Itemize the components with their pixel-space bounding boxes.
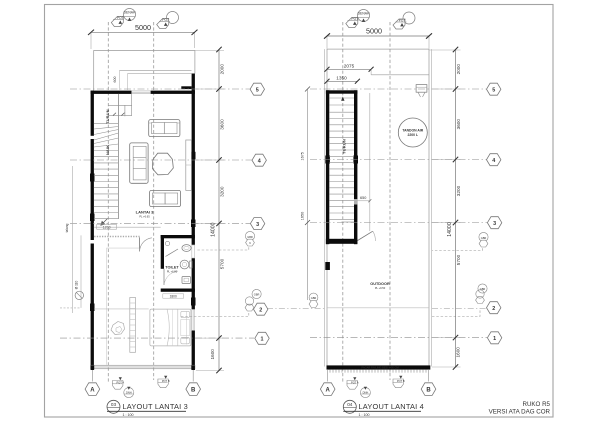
svg-text:A: A: [90, 388, 95, 394]
svg-text:1600: 1600: [210, 349, 215, 360]
svg-text:1: 1: [493, 336, 496, 342]
svg-text:14000: 14000: [211, 222, 217, 237]
svg-text:14000: 14000: [447, 222, 453, 237]
svg-text:4: 4: [492, 158, 495, 164]
svg-text:3600: 3600: [220, 119, 225, 130]
svg-text:OUTDOOR: OUTDOOR: [370, 282, 390, 286]
svg-text:TANDON AIR: TANDON AIR: [402, 128, 423, 132]
svg-text:1 : 100: 1 : 100: [123, 413, 134, 417]
svg-text:2200 L: 2200 L: [408, 133, 419, 137]
svg-text:PL +6.80: PL +6.80: [167, 270, 178, 274]
svg-text:POT: POT: [399, 19, 406, 23]
svg-text:1600: 1600: [456, 347, 461, 358]
svg-text:GBR: GBR: [311, 296, 317, 300]
svg-text:POT A: POT A: [351, 380, 359, 384]
svg-text:2000: 2000: [456, 64, 461, 75]
svg-text:5: 5: [256, 88, 259, 94]
svg-text:POT: POT: [352, 17, 359, 21]
svg-text:talang: talang: [65, 223, 69, 232]
svg-text:3: 3: [493, 221, 496, 227]
svg-text:RUKO R5: RUKO R5: [522, 401, 550, 408]
svg-text:1650: 1650: [301, 212, 305, 220]
svg-text:B: B: [191, 388, 196, 394]
svg-text:DNH: DNH: [363, 390, 369, 394]
svg-text:DENAH: DENAH: [358, 12, 370, 16]
svg-text:POT B: POT B: [162, 379, 170, 383]
svg-text:2000: 2000: [220, 64, 225, 75]
svg-text:1350: 1350: [336, 75, 347, 80]
svg-text:5700: 5700: [456, 254, 461, 265]
svg-text:GBR: GBR: [480, 287, 486, 291]
svg-text:GBR: GBR: [254, 293, 260, 297]
svg-text:1: 1: [261, 337, 264, 343]
svg-text:POT A: POT A: [117, 380, 125, 384]
svg-text:NAIK: NAIK: [106, 145, 110, 155]
svg-text:PAGAR RAILING BESI t=90 CM: PAGAR RAILING BESI t=90 CM: [361, 366, 398, 370]
svg-text:DENAH: DENAH: [124, 11, 136, 15]
svg-text:5: 5: [492, 88, 495, 94]
svg-text:POT: POT: [162, 18, 169, 22]
svg-text:03: 03: [111, 402, 117, 407]
svg-text:04: 04: [347, 402, 353, 407]
svg-text:650: 650: [360, 196, 366, 200]
svg-text:600: 600: [113, 77, 117, 83]
svg-text:1 : 100: 1 : 100: [359, 413, 370, 417]
svg-text:TURUN: TURUN: [341, 139, 346, 154]
svg-text:1675: 1675: [301, 152, 305, 160]
svg-text:2075: 2075: [344, 63, 355, 68]
svg-text:TURUN: TURUN: [106, 109, 110, 123]
svg-text:GBR: GBR: [247, 235, 253, 239]
svg-text:2: 2: [492, 306, 495, 312]
svg-text:PL +6.65: PL +6.65: [139, 215, 150, 219]
svg-text:2: 2: [259, 308, 262, 314]
svg-text:B: B: [426, 388, 431, 394]
svg-text:LANTAI 3: LANTAI 3: [136, 210, 154, 215]
svg-text:4: 4: [258, 159, 261, 165]
svg-text:LAYOUT LANTAI 4: LAYOUT LANTAI 4: [359, 402, 424, 411]
svg-text:POT B: POT B: [397, 379, 405, 383]
svg-text:DNH: DNH: [126, 390, 132, 394]
svg-text:3200: 3200: [220, 186, 225, 197]
svg-text:3600: 3600: [456, 119, 461, 130]
svg-text:PL +9.50: PL +9.50: [375, 286, 386, 290]
svg-text:A: A: [326, 388, 331, 394]
svg-text:5000: 5000: [135, 23, 151, 32]
svg-text:VERSI ATA DAG COR: VERSI ATA DAG COR: [489, 409, 551, 416]
svg-text:LAYOUT LANTAI 3: LAYOUT LANTAI 3: [123, 402, 188, 411]
svg-text:5000: 5000: [366, 27, 382, 36]
svg-text:TOILET: TOILET: [165, 266, 179, 270]
svg-text:3200: 3200: [456, 185, 461, 196]
svg-text:5700: 5700: [220, 258, 225, 269]
svg-text:GBR: GBR: [481, 236, 487, 240]
svg-text:POT: POT: [117, 16, 124, 20]
svg-text:1800: 1800: [170, 294, 177, 298]
svg-text:Ø 110: Ø 110: [75, 281, 79, 290]
svg-text:3: 3: [256, 222, 259, 228]
